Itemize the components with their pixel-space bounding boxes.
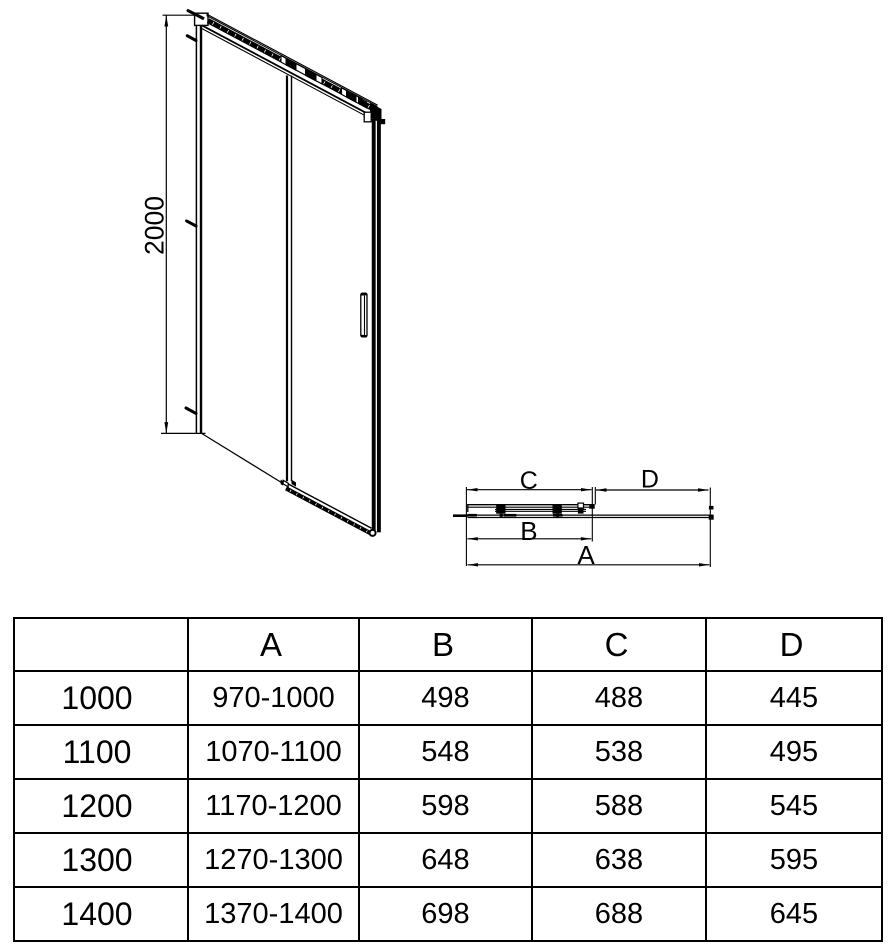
svg-text:C: C — [520, 467, 538, 495]
svg-text:A: A — [577, 540, 595, 570]
svg-text:B: B — [520, 516, 537, 546]
svg-text:D: D — [641, 466, 659, 494]
svg-text:2000: 2000 — [140, 196, 170, 255]
